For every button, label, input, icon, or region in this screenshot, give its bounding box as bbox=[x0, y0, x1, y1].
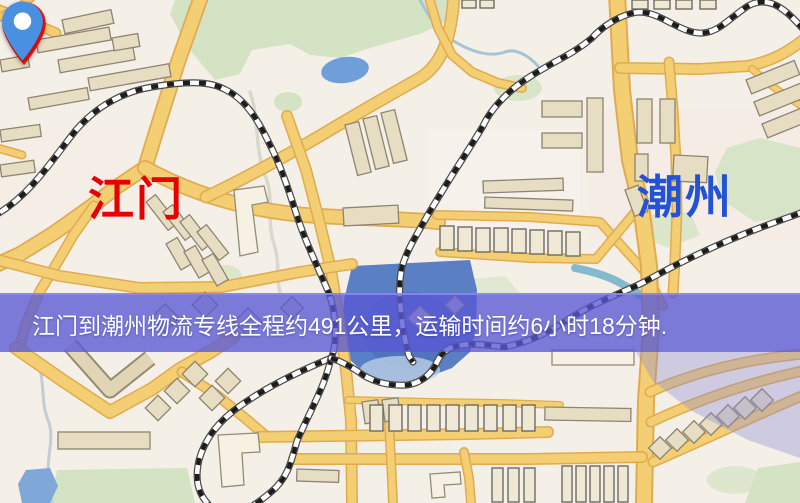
pin-hole bbox=[14, 12, 31, 29]
location-pin-icon bbox=[2, 1, 43, 60]
pond-small bbox=[18, 468, 58, 503]
map-canvas[interactable] bbox=[0, 0, 800, 503]
destination-city-label: 潮州 bbox=[637, 174, 733, 220]
route-info-text: 江门到潮州物流专线全程约491公里，运输时间约6小时18分钟. bbox=[0, 307, 667, 341]
origin-city-label: 江门 bbox=[88, 176, 184, 222]
pond bbox=[319, 54, 370, 86]
logistics-route-map: 江门 潮州 江门到潮州物流专线全程约491公里，运输时间约6小时18分钟. bbox=[0, 0, 800, 503]
route-info-banner: 江门到潮州物流专线全程约491公里，运输时间约6小时18分钟. bbox=[0, 293, 800, 352]
destination-pin[interactable] bbox=[0, 0, 45, 62]
